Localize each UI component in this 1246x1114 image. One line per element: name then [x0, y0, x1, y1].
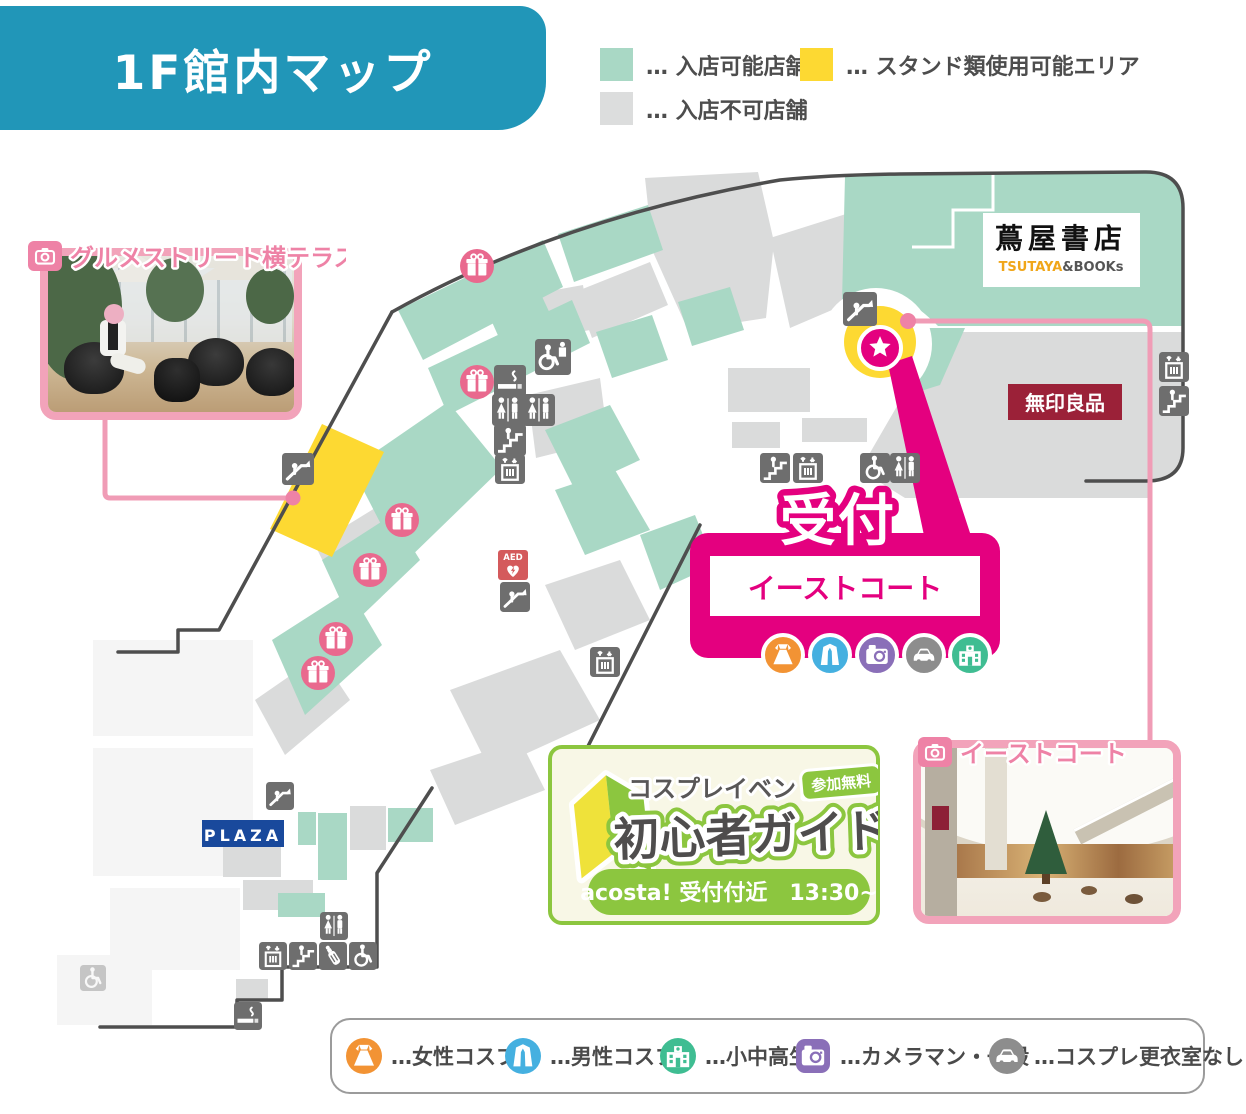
wheelchair-icon: [349, 942, 377, 970]
east-court-photo-label: イーストコート: [916, 732, 1196, 772]
stairs-icon: [1159, 386, 1189, 416]
badge-no-dressing-room: [904, 635, 944, 675]
wheelchair-icon: [860, 453, 890, 483]
gift-icon: [353, 553, 387, 587]
legend-enterable: … 入店可能店舗: [600, 48, 808, 81]
badge-male-cosplay: [810, 635, 850, 675]
plaza-label: PLAZA: [202, 820, 284, 847]
legend-swatch-not-enterable: [600, 92, 633, 125]
gift-icon: [319, 622, 353, 656]
camera-icon: [918, 737, 952, 767]
floor-map-page: 蔦屋書店 TSUTAYA&BOOKs 無印良品 PLAZA AED イーストコー…: [0, 0, 1246, 1114]
guide-schedule-pill: acosta! 受付付近 13:30~: [580, 869, 878, 915]
escalator-icon: [500, 582, 530, 612]
camera-icon: [793, 1036, 833, 1076]
elevator-icon: [590, 647, 620, 677]
gift-icon: [460, 249, 494, 283]
attendee-no-dressing-room: …コスプレ更衣室なし: [987, 1036, 1244, 1076]
school-icon: [658, 1036, 698, 1076]
svg-text:無印良品: 無印良品: [1025, 391, 1105, 415]
svg-text:acosta! 受付付近 13:30~: acosta! 受付付近 13:30~: [580, 880, 878, 906]
stairs-icon: [289, 942, 317, 970]
svg-text:PLAZA: PLAZA: [204, 826, 282, 845]
restroom-icon: [523, 394, 555, 426]
stairs-icon: [494, 424, 526, 456]
svg-text:イーストコート: イーストコート: [960, 740, 1127, 768]
camera-icon: [28, 241, 62, 271]
terrace-photo-label: グルメストリート横テラス: [26, 236, 346, 276]
wheelchair-icon: [80, 965, 106, 991]
car-icon: [987, 1036, 1027, 1076]
restroom-icon: [890, 453, 920, 483]
terrace-photo: [48, 256, 294, 412]
escalator-icon: [266, 782, 294, 810]
legend-not-enterable: … 入店不可店舗: [600, 92, 808, 125]
legend-stand-area: … スタンド類使用可能エリア: [800, 48, 1140, 81]
dress-icon: [344, 1036, 384, 1076]
accessible-toilet-icon: [535, 339, 571, 375]
elevator-icon: [259, 942, 287, 970]
guide-event-name: コスプレイベント: [628, 775, 820, 803]
restroom-icon: [320, 912, 348, 940]
floor-map: 蔦屋書店 TSUTAYA&BOOKs 無印良品 PLAZA AED イーストコー…: [0, 0, 1246, 1114]
badge-students: [950, 635, 990, 675]
gift-icon: [385, 503, 419, 537]
svg-text:TSUTAYA&BOOKs: TSUTAYA&BOOKs: [999, 260, 1124, 275]
elevator-icon: [1159, 352, 1189, 382]
jacket-icon: [503, 1036, 543, 1076]
guide-title: 初心者ガイド 初心者ガイド 初心者ガイド: [613, 803, 878, 867]
badge-female-cosplay: [763, 635, 803, 675]
legend-swatch-enterable: [600, 48, 633, 81]
elevator-icon: [495, 454, 525, 484]
page-title-banner: 1F館内マップ: [0, 6, 546, 130]
smoking-area-icon: [494, 365, 526, 397]
nursing-room-icon: [319, 942, 347, 970]
smoking-area-icon: [234, 1002, 262, 1030]
elevator-icon: [793, 453, 823, 483]
restroom-icon: [492, 394, 524, 426]
stairs-icon: [760, 453, 790, 483]
reception-star-badge: [859, 327, 901, 369]
east-court-photo: [921, 748, 1173, 916]
guide-free-badge: 参加無料: [800, 764, 878, 801]
attendee-legend: …女性コスプレ …男性コスプレ …小中高生 …カメラマン・一般: [330, 1018, 1205, 1094]
escalator-icon: [282, 453, 314, 485]
svg-text:AED: AED: [503, 553, 522, 563]
tsutaya-label: 蔦屋書店 TSUTAYA&BOOKs: [983, 213, 1140, 287]
gift-icon: [460, 365, 494, 399]
legend-swatch-stand-area: [800, 48, 833, 81]
reception-location: イーストコート: [748, 572, 943, 605]
beginner-guide-card: コスプレイベント 参加無料 初心者ガイド 初心者ガイド 初心者ガイド acost…: [548, 745, 880, 925]
attendee-students: …小中高生: [658, 1036, 810, 1076]
svg-text:初心者ガイド: 初心者ガイド: [613, 803, 878, 867]
aed-icon: AED: [498, 550, 528, 580]
page-title: 1F館内マップ: [113, 34, 434, 103]
reception-title: 受付: [780, 489, 896, 554]
badge-cameraman: [857, 635, 897, 675]
gift-icon: [301, 656, 335, 690]
svg-text:蔦屋書店: 蔦屋書店: [995, 222, 1127, 255]
escalator-icon: [843, 292, 877, 326]
muji-label: 無印良品: [1008, 384, 1122, 420]
svg-text:グルメストリート横テラス: グルメストリート横テラス: [70, 244, 346, 272]
